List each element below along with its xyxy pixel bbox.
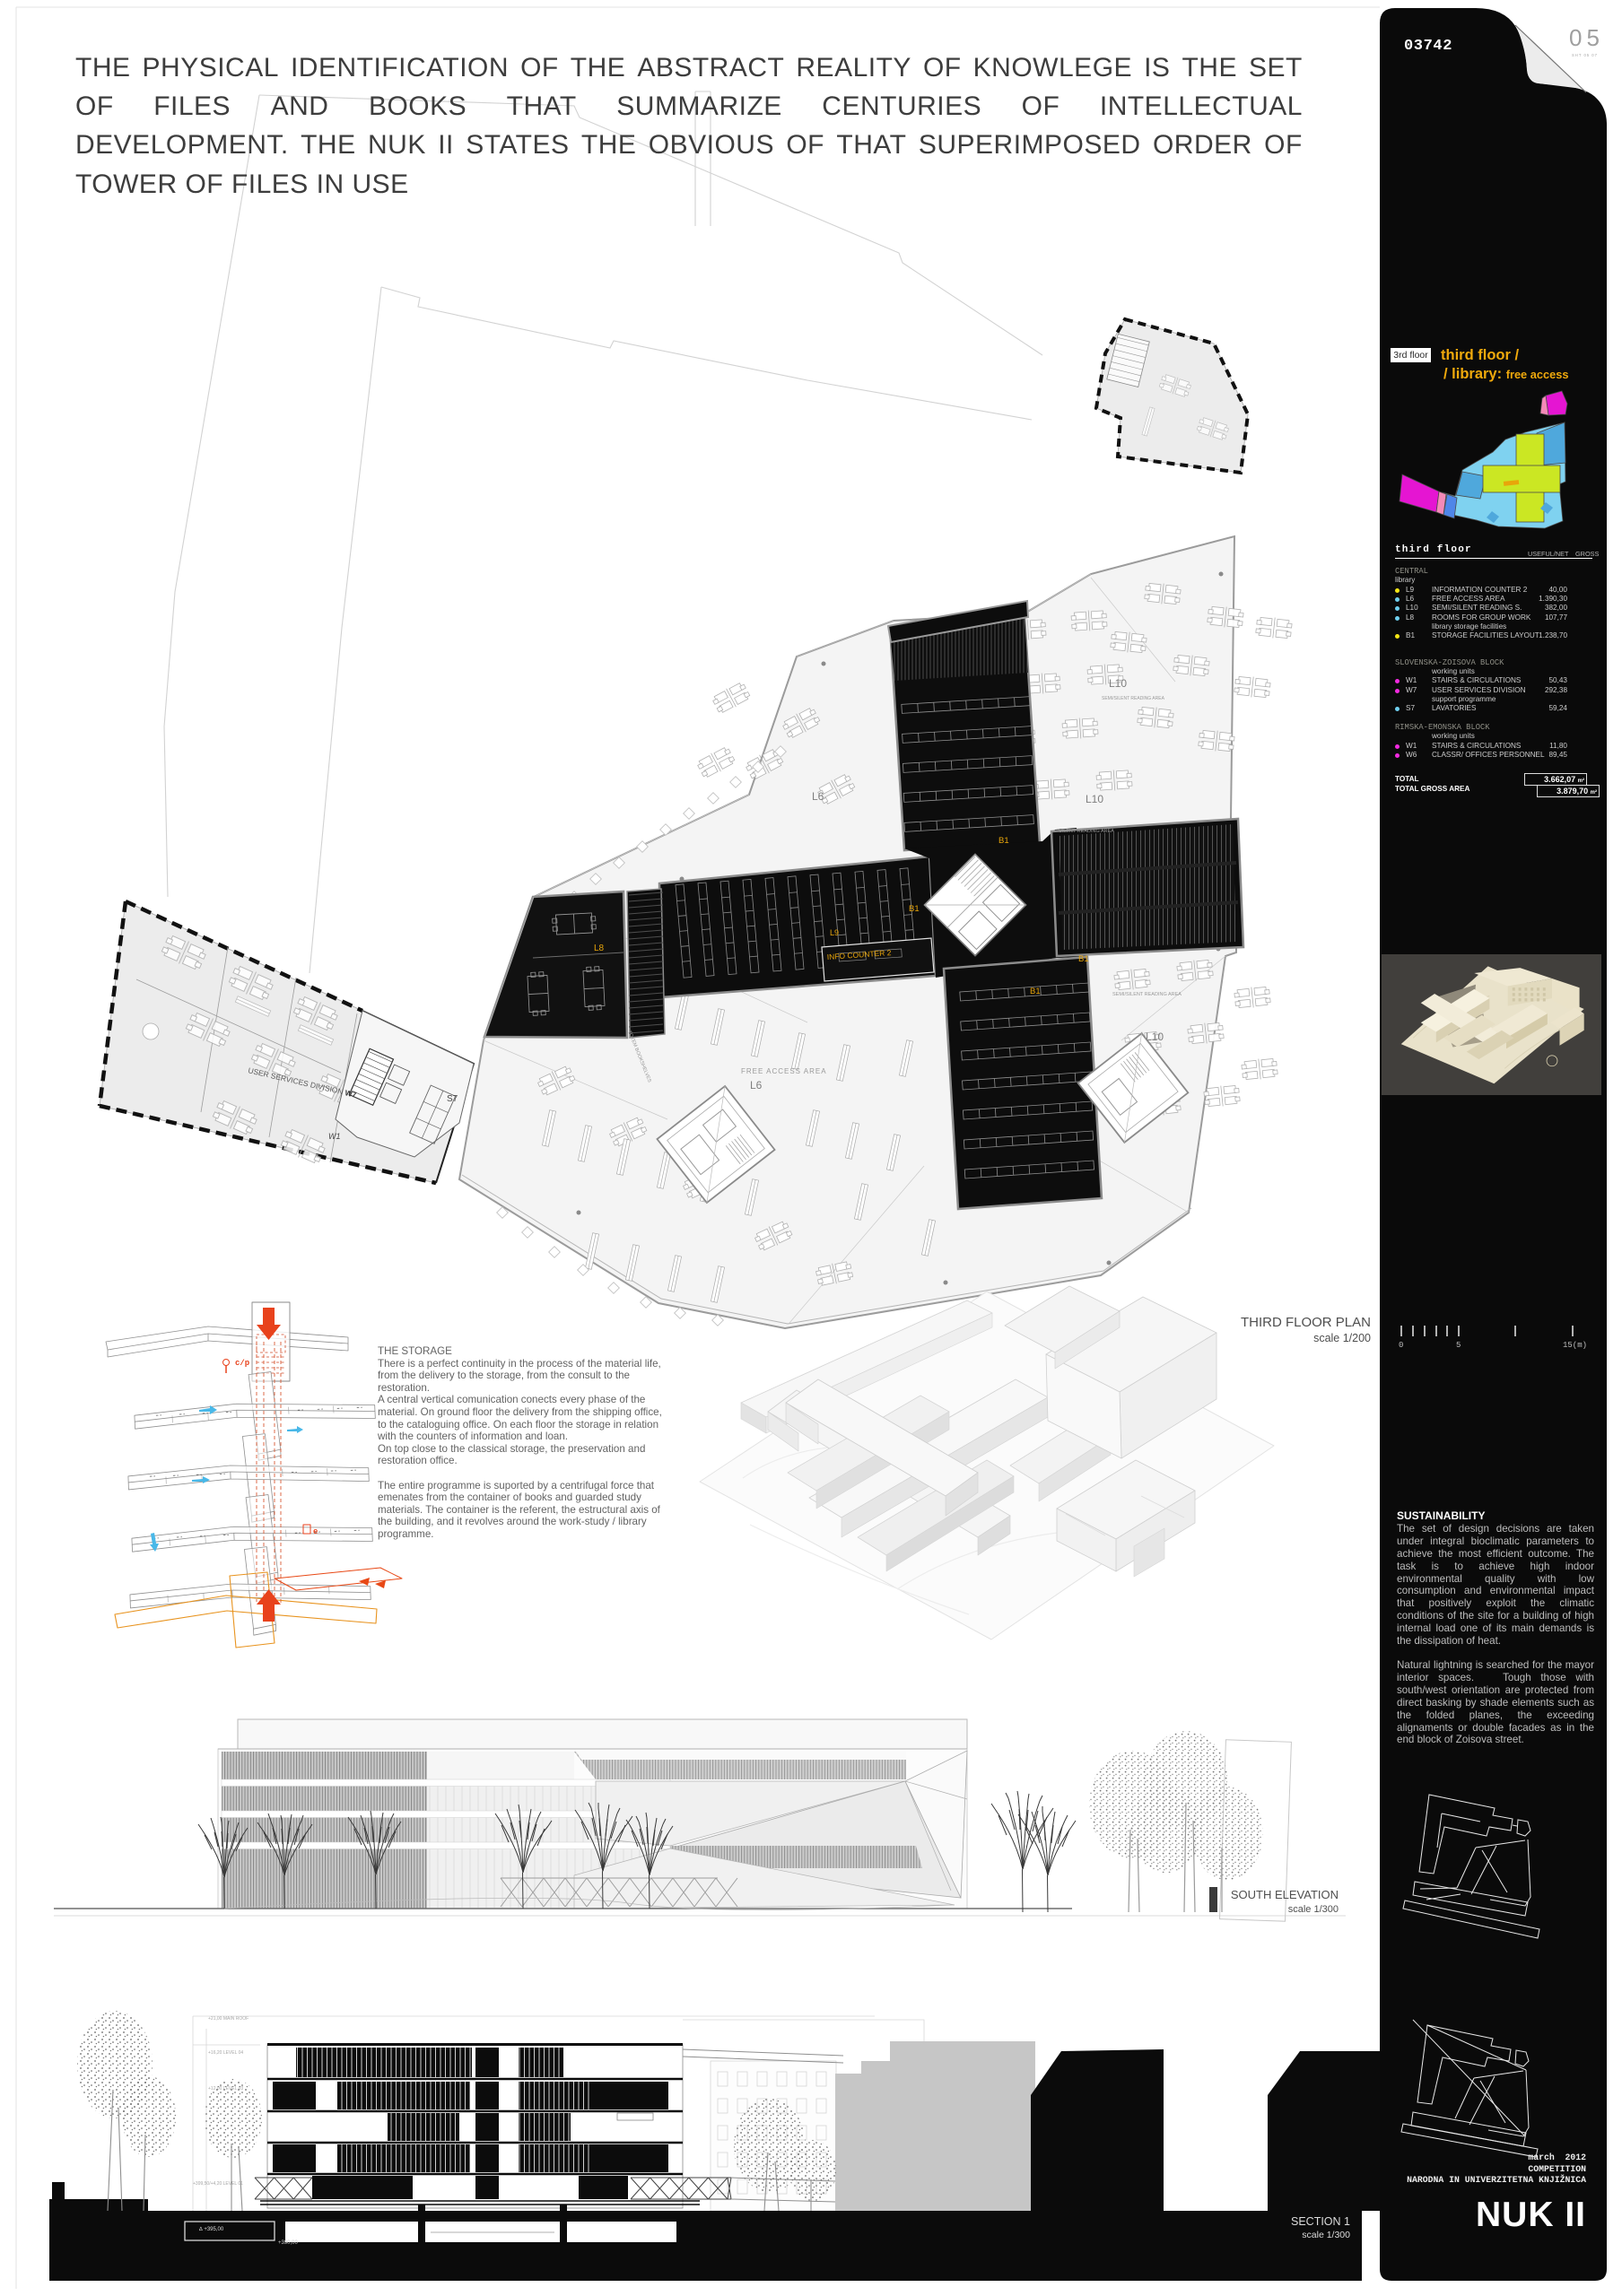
svg-text:B1: B1 — [909, 904, 920, 914]
svg-text:∆ +395,00: ∆ +395,00 — [199, 2226, 224, 2232]
svg-text:W1: W1 — [328, 1132, 341, 1141]
svg-text:B1: B1 — [1030, 987, 1041, 996]
svg-text:B1: B1 — [1078, 954, 1089, 964]
svg-text:L6: L6 — [750, 1079, 763, 1091]
svg-text:FREE ACCESS AREA: FREE ACCESS AREA — [741, 1067, 827, 1075]
svg-text:SEMI/SILENT READING AREA: SEMI/SILENT READING AREA — [1102, 696, 1165, 701]
svg-text:+21,00 MAIN ROOF: +21,00 MAIN ROOF — [208, 2016, 249, 2022]
svg-text:L9: L9 — [830, 928, 839, 937]
svg-text:L10: L10 — [1109, 677, 1127, 690]
svg-text:0: 0 — [1399, 1341, 1403, 1350]
svg-text:L8: L8 — [594, 944, 605, 953]
svg-text:c/p: c/p — [235, 1359, 249, 1368]
svg-text:e: e — [313, 1527, 318, 1536]
svg-text:+390,00: +390,00 — [278, 2240, 299, 2246]
svg-text:L10: L10 — [1086, 793, 1103, 805]
svg-text:B1: B1 — [998, 836, 1009, 846]
svg-text:+16,20 LEVEL 04: +16,20 LEVEL 04 — [208, 2050, 243, 2056]
svg-text:SEMI/SILENT READING AREA: SEMI/SILENT READING AREA — [1112, 992, 1182, 997]
svg-text:+399,50/+4,20 LEVEL 01: +399,50/+4,20 LEVEL 01 — [193, 2181, 243, 2187]
svg-text:15(m): 15(m) — [1563, 1341, 1587, 1350]
svg-text:SILENT READING AREA: SILENT READING AREA — [1059, 829, 1114, 834]
svg-text:S7: S7 — [447, 1094, 458, 1104]
svg-text:5: 5 — [1456, 1341, 1461, 1350]
svg-text:L6: L6 — [812, 790, 824, 803]
